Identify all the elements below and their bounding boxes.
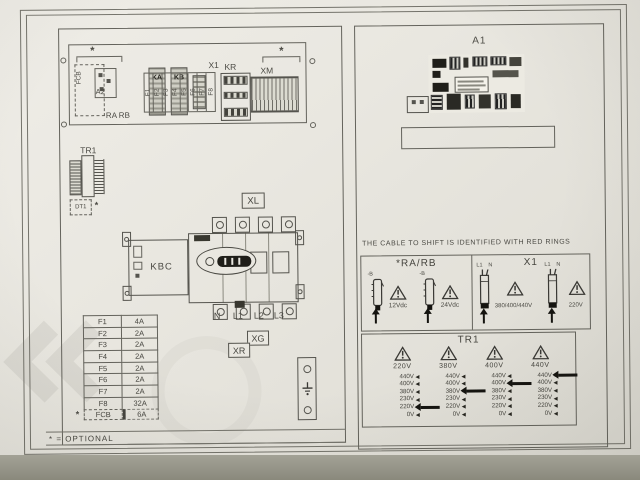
- wire-label: N: [488, 263, 492, 269]
- table-row: F52A: [83, 361, 158, 373]
- pcb-block: [432, 59, 446, 68]
- ground-icon: [301, 382, 313, 396]
- tap-row: 0V: [386, 411, 420, 419]
- mounting-hole-icon: [60, 57, 66, 63]
- tap-label: 400V: [400, 381, 415, 387]
- terminal-screw-icon: [304, 406, 312, 414]
- tr1-column-400v: 400V 440V 400V 380V 230V 220V 0V: [472, 345, 517, 418]
- switch-window: [272, 251, 289, 273]
- tap-label: 0V: [453, 411, 461, 417]
- module-detail: [224, 76, 248, 85]
- fuse-name: FCB: [84, 408, 123, 420]
- terminal-screw-icon: [285, 307, 293, 315]
- warning-icon: [569, 280, 586, 295]
- table-row: F22A: [83, 326, 158, 338]
- pcb-label-line: [458, 80, 484, 82]
- kbc-label: KBC: [150, 262, 173, 272]
- tap-label: 0V: [407, 412, 415, 418]
- optional-note: * = OPTIONAL: [46, 433, 114, 443]
- tap-row: 0V: [432, 411, 466, 419]
- pcb-block: [447, 94, 461, 110]
- terminal-label-l2: L2: [254, 312, 264, 321]
- tap-label: 440V: [537, 372, 552, 378]
- a1-label: A1: [472, 36, 486, 46]
- tap-label: 440V: [399, 374, 414, 380]
- tr1-transformer-terminals: [94, 159, 104, 194]
- fuse-name: F3: [83, 338, 122, 350]
- tap-label: 220V: [492, 403, 507, 409]
- terminal-screw-icon: [215, 221, 223, 229]
- tap-mark-icon: [554, 396, 558, 400]
- fuse-label: F3: [163, 89, 170, 97]
- optional-star: *: [95, 201, 99, 210]
- fuse-name: F5: [83, 362, 122, 374]
- switch-detail: [235, 301, 245, 308]
- pcb-block: [463, 58, 468, 68]
- fuse-name: F6: [83, 373, 122, 385]
- fuse-holder: F6: [189, 73, 198, 111]
- tap-label: 0V: [545, 410, 553, 416]
- table-row-optional: FCB6A: [84, 408, 159, 420]
- pcb-block: [492, 70, 518, 77]
- mounting-hole-icon: [310, 122, 316, 128]
- fuse-rating: 2A: [122, 385, 158, 397]
- tap-label: 220V: [446, 404, 461, 410]
- switch-terminal: [235, 217, 250, 233]
- tap-mark-icon: [554, 411, 558, 415]
- fuse-name: F4: [83, 350, 122, 362]
- tr1-column-440v: 440V 440V 400V 380V 230V 220V 0V: [518, 345, 563, 418]
- relay-icon: [421, 277, 437, 311]
- table-row: F14A: [83, 315, 158, 327]
- a1-pcb-annex: [407, 96, 429, 113]
- fuse-label: F1: [145, 89, 152, 97]
- fuse-holder-row: F1 F2 F3 F4 F5 F6 F7 F8: [143, 72, 215, 113]
- handle-detail: [238, 258, 240, 265]
- tap-mark-icon: [415, 382, 419, 386]
- module-detail: [412, 100, 416, 104]
- tap-mark-icon: [462, 397, 466, 401]
- handle-detail: [224, 258, 226, 265]
- dt1-module-outline: DT1: [70, 199, 92, 215]
- mounting-hole-icon: [61, 121, 67, 127]
- tr1-column-220v: 220V 440V 400V 380V 230V 220V 0V: [380, 346, 425, 419]
- relay-voltage: 24Vdc: [441, 303, 459, 310]
- xr-terminal-label: XR: [228, 343, 250, 358]
- kr-label: KR: [224, 63, 236, 72]
- xl-text: XL: [247, 195, 259, 206]
- xr-text: XR: [233, 345, 246, 355]
- table-row: F72A: [83, 385, 158, 397]
- tap-label: 440V: [445, 373, 460, 379]
- tap-mark-icon: [416, 390, 420, 394]
- xg-terminal-label: XG: [247, 330, 269, 345]
- module-detail: [133, 246, 142, 258]
- switch-terminal: [281, 216, 296, 232]
- relay-voltage: 12Vdc: [389, 303, 407, 310]
- paper-sheet: * * FCB A2 KA KB X1 RA RB F1: [0, 0, 640, 456]
- pcb-label-line: [458, 88, 480, 90]
- tap-label: 380V: [492, 388, 507, 394]
- tap-label: 230V: [400, 397, 415, 403]
- fuse-rating: 2A: [122, 326, 158, 338]
- tap-mark-icon: [461, 382, 465, 386]
- warning-icon: [390, 285, 407, 300]
- terminal-label-n: N: [214, 312, 221, 321]
- module-detail: [133, 262, 142, 270]
- tap-mark-icon: [554, 404, 558, 408]
- optional-star: *: [76, 410, 80, 419]
- x1-section: X1 L1 N 380/400/440V L1 N 220V: [472, 254, 590, 329]
- tap-label: 380V: [400, 389, 415, 395]
- module-detail: [98, 73, 102, 77]
- red-ring-arrow-icon: [483, 313, 485, 323]
- module-detail: [107, 79, 111, 83]
- fuse-name: F8: [84, 397, 123, 409]
- warning-icon: [532, 345, 549, 360]
- fuse-name: F1: [83, 315, 122, 327]
- fuse-name: F7: [83, 385, 122, 397]
- switch-terminal: [258, 216, 273, 232]
- fuse-label: F4: [172, 89, 179, 97]
- xl-terminal-label: XL: [242, 193, 265, 209]
- fuse-rating: 2A: [122, 361, 158, 373]
- fuse-rating: 2A: [122, 350, 158, 362]
- xm-label: XM: [260, 66, 273, 75]
- fuse-label: F8: [207, 88, 214, 96]
- tap-mark-icon: [462, 405, 466, 409]
- tap-list: 440V 400V 380V 230V 220V 0V: [472, 372, 516, 418]
- tap-label: 0V: [499, 411, 507, 417]
- fcb-label: FCB: [76, 71, 83, 84]
- pcb-block: [509, 57, 521, 66]
- tr1-transformer-body: [81, 155, 94, 197]
- dt1-label: DT1: [75, 204, 86, 210]
- tap-mark-icon: [553, 381, 557, 385]
- tap-mark-icon: [462, 412, 466, 416]
- tap-label: 400V: [446, 381, 461, 387]
- table-row: F42A: [83, 350, 158, 362]
- terminal-screw-icon: [238, 221, 246, 229]
- warning-icon: [440, 346, 457, 361]
- tap-header: 440V: [518, 362, 562, 369]
- terminal-screw-icon: [261, 220, 269, 228]
- module-detail: [224, 108, 248, 117]
- fuse-label: F7: [198, 88, 205, 96]
- xm-terminal-strip: [251, 76, 299, 112]
- fuse-holder: F4: [171, 73, 180, 111]
- terminal-voltage: 220V: [569, 302, 583, 308]
- warning-icon: [442, 285, 459, 300]
- pcb-block: [495, 93, 507, 109]
- tap-label: 230V: [446, 396, 461, 402]
- voltage-marking-table: *RA/RB -B 12Vdc -B 24Vdc X1: [360, 253, 591, 331]
- tap-mark-icon: [508, 389, 512, 393]
- group-bracket: [262, 56, 300, 61]
- x1-label: X1: [208, 61, 218, 70]
- tap-mark-icon: [416, 398, 420, 402]
- tap-label: 380V: [538, 388, 553, 394]
- switch-terminal: [212, 217, 227, 233]
- tap-label: 400V: [492, 381, 507, 387]
- tr1-tap-table: TR1 220V 440V 400V 380V 230V 220V 0V: [361, 332, 577, 428]
- tap-list: 440V 400V 380V 230V 220V 0V: [426, 373, 470, 419]
- mounting-hole-icon: [309, 58, 315, 64]
- pcb-block: [465, 95, 475, 109]
- pcb-block: [511, 94, 521, 108]
- relay-icon: [369, 277, 385, 311]
- fuse-holder: F7: [198, 73, 207, 111]
- fuse-rating: 32A: [123, 396, 159, 408]
- ra-rb-label: RA RB: [106, 112, 130, 120]
- terminal-icon: [545, 269, 559, 309]
- tap-list: 440V 400V 380V 230V 220V 0V: [518, 372, 562, 418]
- fuse-rating: 4A: [122, 315, 158, 327]
- blank-name-plate: [401, 126, 555, 149]
- warning-icon: [394, 346, 411, 361]
- a1-pcb-graphic: [428, 54, 525, 113]
- tap-header: 380V: [426, 363, 470, 370]
- photo-of-wiring-diagram: * * FCB A2 KA KB X1 RA RB F1: [0, 0, 640, 480]
- module-detail: [135, 274, 139, 278]
- tr1-transformer-coil: [69, 160, 81, 195]
- wire-label: N: [556, 263, 560, 269]
- tap-row: 0V: [524, 410, 558, 418]
- terminal-screw-icon: [303, 365, 311, 373]
- table-row: F32A: [83, 338, 158, 350]
- pcb-block: [432, 71, 440, 78]
- warning-icon: [507, 281, 524, 296]
- module-detail: [420, 100, 424, 104]
- tap-mark-icon: [554, 389, 558, 393]
- pcb-block: [449, 57, 460, 70]
- pcb-label-block: [455, 76, 489, 92]
- terminal-screw-icon: [284, 220, 292, 228]
- table-row: F62A: [83, 373, 158, 385]
- tap-label: 220V: [400, 404, 415, 410]
- photo-background-band: 52781-17575813: [0, 455, 640, 480]
- handle-pivot-icon: [205, 257, 214, 266]
- pcb-block: [472, 56, 487, 66]
- handle-grip: [217, 256, 251, 267]
- fuse-holder: F2: [153, 74, 162, 112]
- wire-label: L1: [476, 263, 482, 269]
- pcb-block: [433, 83, 449, 92]
- fuse-rating: 2A: [122, 338, 158, 350]
- handle-detail: [231, 258, 233, 265]
- selection-arrow-icon: [558, 374, 577, 377]
- tap-mark-icon: [508, 404, 512, 408]
- module-detail: [224, 92, 248, 99]
- red-ring-arrow-icon: [427, 313, 429, 323]
- tap-mark-icon: [416, 413, 420, 417]
- pcb-block: [479, 94, 491, 108]
- tap-label: 230V: [538, 395, 553, 401]
- wire-label: L1: [544, 263, 550, 269]
- fuse-rating: 2A: [122, 373, 158, 385]
- tr1-label: TR1: [80, 146, 96, 155]
- fuse-label: F5: [181, 88, 188, 96]
- fuse-label: F2: [154, 89, 161, 97]
- a2-label: A2: [96, 88, 105, 96]
- table-row: F832A: [84, 396, 159, 408]
- tap-mark-icon: [507, 374, 511, 378]
- tap-label: 230V: [492, 396, 507, 402]
- tap-mark-icon: [508, 412, 512, 416]
- pcb-block: [490, 56, 506, 65]
- tap-label: 380V: [446, 389, 461, 395]
- switch-terminal: [282, 303, 297, 319]
- pcb-label-line: [458, 84, 486, 86]
- tap-mark-icon: [461, 374, 465, 378]
- fuse-name: F2: [83, 327, 122, 339]
- brand-tag: [194, 235, 210, 241]
- group-bracket: [76, 56, 122, 61]
- pcb-block: [431, 95, 443, 110]
- tap-header: 220V: [380, 363, 424, 370]
- terminal-label-l3: L3: [274, 311, 284, 320]
- warning-icon: [486, 345, 503, 360]
- ra-rb-title: *RA/RB: [361, 258, 471, 270]
- tr1-column-380v: 380V 440V 400V 380V 230V 220V 0V: [426, 346, 471, 419]
- terminal-icon: [477, 269, 491, 309]
- drawing-sheet: * * FCB A2 KA KB X1 RA RB F1: [0, 0, 640, 459]
- tap-mark-icon: [508, 397, 512, 401]
- tap-label: 220V: [538, 403, 553, 409]
- terminal-voltage: 380/400/440V: [495, 303, 532, 309]
- fuse-label: F6: [189, 88, 196, 96]
- fuse-rating-table: F14A F22A F32A F42A F52A F62A F72A F832A…: [83, 315, 159, 421]
- tap-list: 440V 400V 380V 230V 220V 0V: [380, 373, 424, 419]
- tap-label: 440V: [491, 373, 506, 379]
- xg-text: XG: [251, 333, 264, 343]
- red-ring-arrow-icon: [375, 313, 377, 323]
- fuse-holder: F5: [180, 73, 189, 111]
- legend-strip: * = OPTIONAL: [46, 429, 346, 446]
- tap-row: 0V: [478, 410, 512, 418]
- terminal-label-l1: L1: [233, 312, 243, 321]
- kr-relay-module: [220, 73, 250, 121]
- tap-header: 400V: [472, 362, 516, 369]
- ground-bar: [297, 357, 317, 420]
- tap-label: 400V: [537, 380, 552, 386]
- fuse-holder: F8: [207, 73, 215, 111]
- tap-mark-icon: [415, 375, 419, 379]
- red-ring-arrow-icon: [551, 313, 553, 323]
- fuse-holder: F3: [162, 73, 171, 111]
- ra-rb-section: *RA/RB -B 12Vdc -B 24Vdc: [361, 256, 473, 331]
- fuse-holder: F1: [144, 74, 153, 112]
- fuse-rating: 6A: [123, 408, 159, 420]
